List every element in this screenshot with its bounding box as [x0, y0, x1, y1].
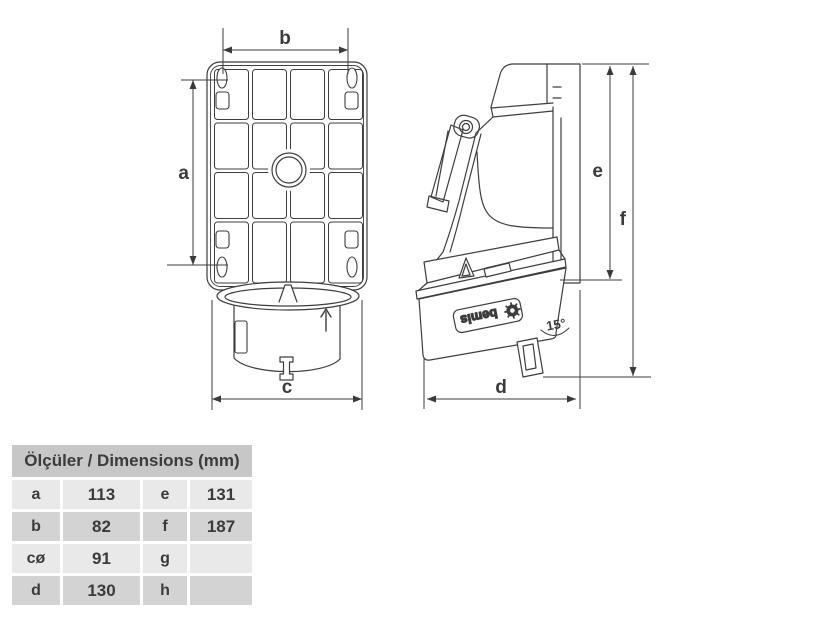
dim-value-e: 131 [190, 480, 252, 509]
dim-key-g: g [143, 544, 187, 573]
dim-d-label: d [495, 377, 507, 398]
dimension-drawings: bemis [0, 0, 825, 440]
dim-key-d: d [12, 576, 60, 605]
dim-value-f: 187 [190, 512, 252, 541]
mounting-plate [207, 62, 367, 290]
dim-value-a: 113 [63, 480, 140, 509]
tilt-angle-label: 15° [545, 315, 567, 333]
socket-body: bemis [419, 268, 566, 377]
dimensions-table: Ölçüler / Dimensions (mm) a 113 e 131 b … [12, 445, 252, 605]
dim-key-f: f [143, 512, 187, 541]
dim-value-h [190, 576, 252, 605]
dim-key-e: e [143, 480, 187, 509]
technical-drawing-page: bemis [0, 0, 825, 619]
dim-key-b: b [12, 512, 60, 541]
dim-key-h: h [143, 576, 187, 605]
dim-e-label: e [592, 161, 603, 182]
dim-key-c: cø [12, 544, 60, 573]
top-cap [491, 64, 553, 117]
center-hole [268, 149, 310, 191]
dim-value-b: 82 [63, 512, 140, 541]
front-view-drawing [207, 62, 367, 380]
flange [217, 282, 359, 310]
dim-b-label: b [279, 28, 291, 49]
dim-value-g [190, 544, 252, 573]
dim-a-label: a [178, 163, 189, 184]
dim-value-c: 91 [63, 544, 140, 573]
dim-key-a: a [12, 480, 60, 509]
dim-f-label: f [620, 209, 627, 230]
foot [517, 338, 543, 377]
cover-lid [427, 125, 463, 212]
side-tab [235, 321, 247, 353]
dimensions-table-title: Ölçüler / Dimensions (mm) [12, 445, 252, 477]
dim-value-d: 130 [63, 576, 140, 605]
dim-c-label: c [282, 377, 293, 398]
